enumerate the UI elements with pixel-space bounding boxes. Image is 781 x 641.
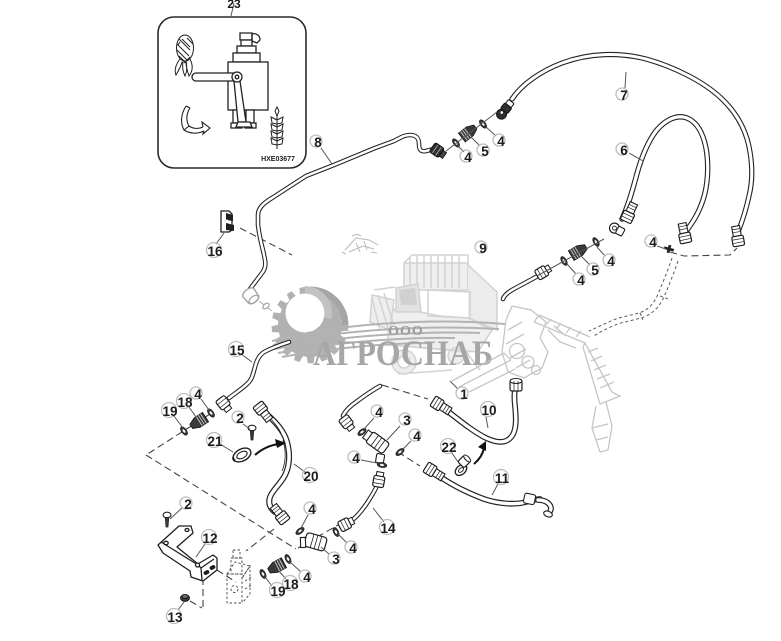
svg-text:19: 19 (270, 584, 285, 599)
svg-text:4: 4 (413, 429, 421, 444)
svg-text:21: 21 (207, 434, 223, 449)
svg-text:3: 3 (403, 413, 411, 428)
svg-text:4: 4 (649, 235, 657, 250)
svg-text:2: 2 (184, 497, 192, 512)
svg-text:3: 3 (332, 552, 340, 567)
svg-text:4: 4 (464, 150, 472, 165)
svg-text:9: 9 (479, 241, 487, 256)
svg-text:4: 4 (194, 387, 202, 402)
svg-text:12: 12 (202, 531, 217, 546)
svg-text:8: 8 (314, 135, 322, 150)
svg-text:18: 18 (177, 395, 193, 410)
svg-text:4: 4 (352, 451, 360, 466)
svg-text:5: 5 (481, 144, 489, 159)
svg-text:19: 19 (162, 404, 177, 419)
svg-text:10: 10 (481, 403, 496, 418)
svg-text:18: 18 (283, 577, 299, 592)
svg-text:АГРОСНАБ: АГРОСНАБ (313, 333, 493, 373)
svg-text:22: 22 (441, 440, 456, 455)
svg-text:4: 4 (607, 254, 615, 269)
svg-text:7: 7 (620, 88, 628, 103)
svg-text:4: 4 (308, 502, 316, 517)
svg-text:1: 1 (460, 387, 468, 402)
svg-text:16: 16 (207, 244, 223, 259)
svg-text:4: 4 (303, 570, 311, 585)
svg-text:5: 5 (591, 263, 599, 278)
svg-text:4: 4 (577, 273, 585, 288)
svg-text:4: 4 (497, 134, 505, 149)
svg-text:11: 11 (495, 471, 510, 486)
svg-text:HXE03677: HXE03677 (261, 156, 295, 163)
svg-text:4: 4 (349, 541, 357, 556)
svg-text:15: 15 (229, 343, 245, 358)
svg-text:13: 13 (167, 610, 183, 625)
svg-text:14: 14 (380, 521, 396, 536)
svg-text:6: 6 (620, 143, 628, 158)
svg-text:23: 23 (227, 0, 241, 11)
svg-text:4: 4 (375, 405, 383, 420)
svg-text:2: 2 (236, 411, 244, 426)
svg-text:20: 20 (303, 469, 318, 484)
